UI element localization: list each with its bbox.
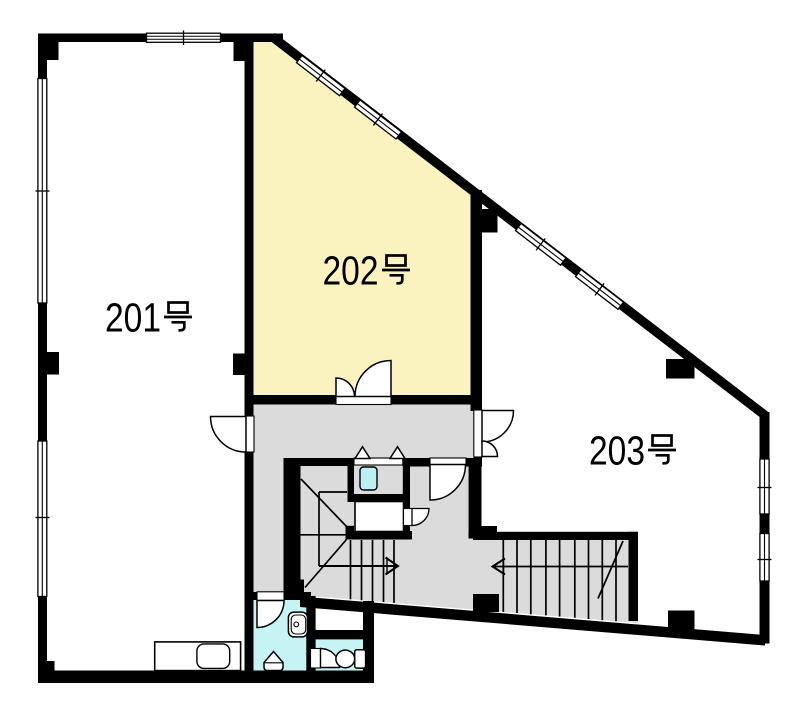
- svg-text:202: 202: [323, 248, 379, 294]
- svg-text:203: 203: [589, 428, 645, 474]
- svg-text:201: 201: [105, 295, 161, 341]
